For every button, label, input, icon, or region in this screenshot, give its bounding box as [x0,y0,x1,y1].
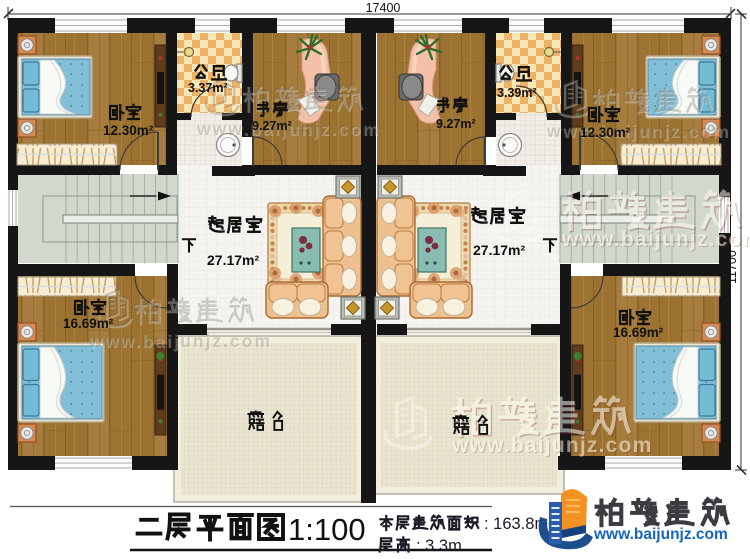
svg-text:9.27m²: 9.27m² [436,117,476,131]
svg-text:www.baijunjz.com: www.baijunjz.com [546,121,730,141]
svg-text:11700: 11700 [725,250,739,284]
svg-text:3.37m²: 3.37m² [188,81,228,95]
svg-text:1:100: 1:100 [288,512,366,547]
svg-text:12.30m²: 12.30m² [103,123,154,138]
svg-text:www.baijunjz.com: www.baijunjz.com [561,228,750,251]
svg-text:17400: 17400 [366,1,401,15]
svg-text:27.17m²: 27.17m² [207,252,259,268]
svg-text:12.30m²: 12.30m² [580,125,631,140]
svg-text:16.69m²: 16.69m² [613,325,664,340]
svg-text:www.baijunjz.com: www.baijunjz.com [593,526,728,543]
svg-text:www.baijunjz.com: www.baijunjz.com [451,434,652,457]
svg-text:27.17m²: 27.17m² [473,242,525,258]
svg-text:3.39m²: 3.39m² [497,86,537,100]
svg-text:9.27m²: 9.27m² [252,119,292,133]
svg-text:16.69m²: 16.69m² [63,316,114,331]
svg-text:: 3.3m: : 3.3m [416,537,462,555]
svg-text:www.baijunjz.com: www.baijunjz.com [88,331,272,351]
